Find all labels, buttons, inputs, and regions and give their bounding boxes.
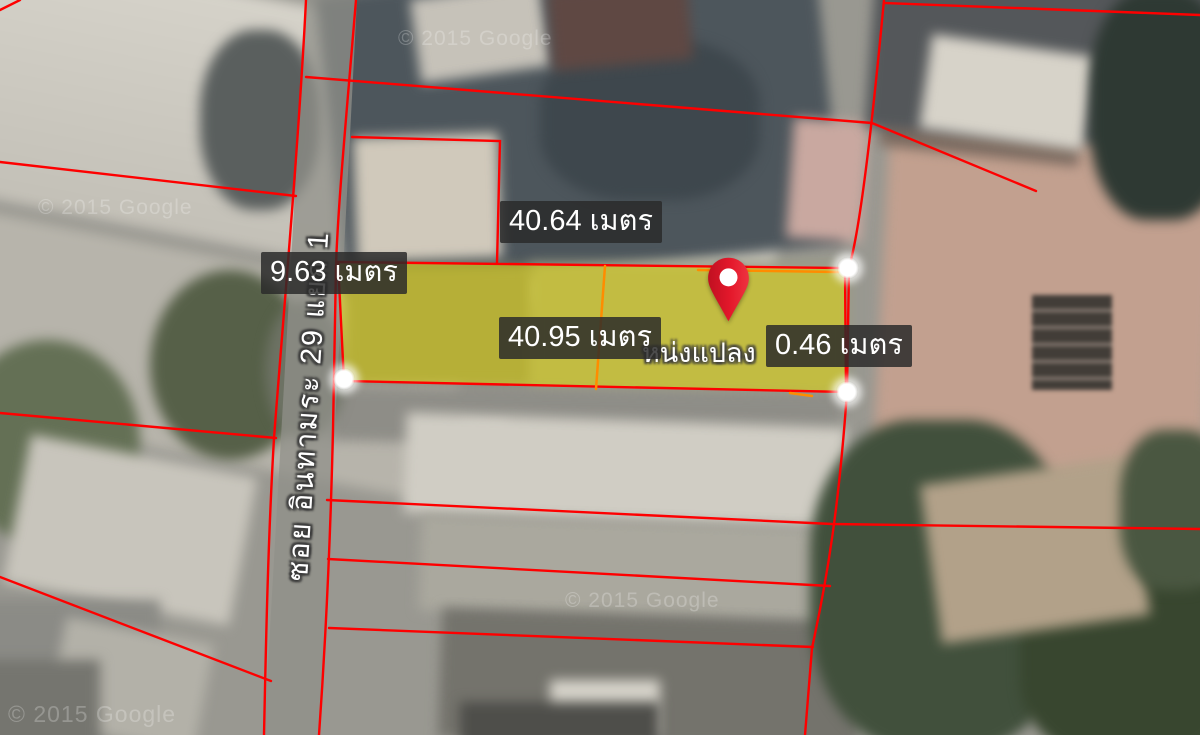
building-outline	[352, 137, 500, 263]
measurement-label-right: 0.46 เมตร	[766, 325, 912, 367]
location-pin-icon[interactable]	[705, 252, 752, 327]
boundary-line	[884, 3, 1200, 15]
boundary-line	[329, 628, 813, 647]
measurement-label-top: 40.64 เมตร	[500, 201, 662, 243]
cadastral-lines-overlay	[0, 0, 1200, 735]
boundary-line	[328, 559, 830, 586]
boundary-line	[0, 413, 276, 438]
parcel-subdivision-line	[790, 393, 812, 396]
boundary-line	[0, 577, 271, 681]
satellite-map-view: © 2015 Google © 2015 Google © 2015 Googl…	[0, 0, 1200, 735]
boundary-line	[0, 0, 20, 10]
parcel-corner-handle[interactable]	[836, 381, 858, 403]
parcel-corner-handle[interactable]	[333, 368, 355, 390]
pin-inner-dot	[719, 268, 737, 286]
boundary-line	[0, 162, 296, 196]
measurement-label-middle: 40.95 เมตร	[499, 317, 661, 359]
boundary-line	[306, 77, 872, 123]
boundary-line	[327, 500, 1200, 529]
measurement-label-left: 9.63 เมตร	[261, 252, 407, 294]
pin-body[interactable]	[708, 258, 749, 321]
parcel-corner-handle[interactable]	[837, 257, 859, 279]
boundary-line	[872, 123, 1036, 191]
